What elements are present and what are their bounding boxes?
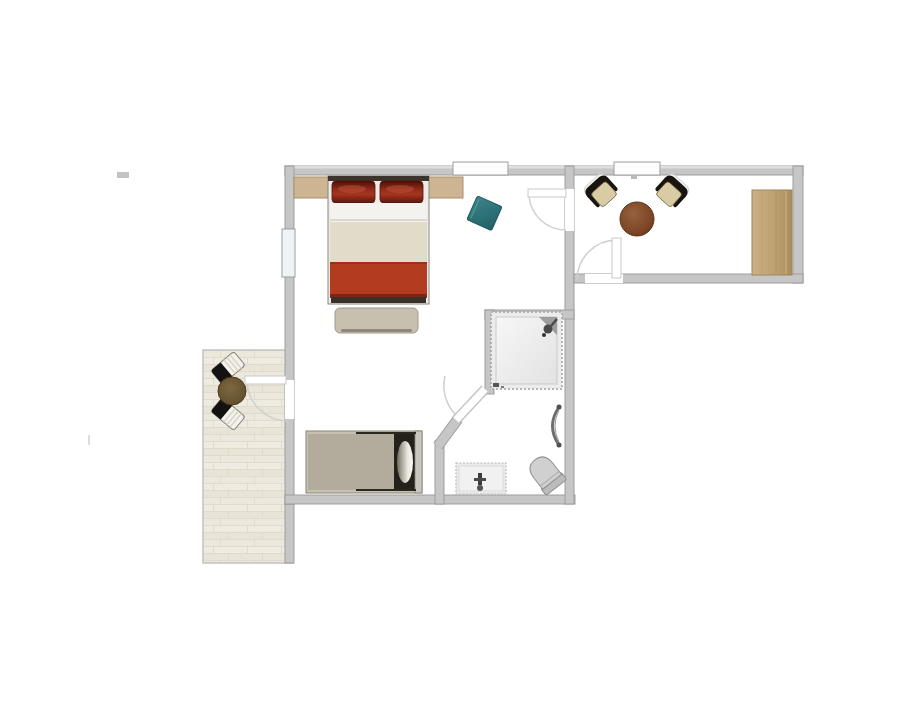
- plan-artifact-dash: [117, 172, 129, 178]
- bed-blanket-red: [330, 262, 427, 298]
- pillow-highlight: [338, 185, 366, 193]
- door-arc-bedroom-hallway: [529, 196, 566, 230]
- nightstand-right: [427, 177, 463, 198]
- wall-hallway-right: [793, 166, 803, 283]
- shower-handle-dot: [501, 386, 504, 388]
- round-side-table: [620, 202, 654, 236]
- floor-plan: [0, 0, 923, 723]
- wardrobe: [752, 190, 792, 275]
- armchair-right: [653, 171, 692, 210]
- faucet-base: [477, 485, 483, 491]
- bed-headboard: [328, 176, 429, 181]
- faucet-crossbar: [474, 478, 486, 481]
- pillow-highlight: [386, 185, 414, 193]
- daybed-mattress: [308, 434, 396, 490]
- window-mark: [631, 176, 637, 179]
- towel-radiator: [553, 405, 562, 448]
- nightstand-left: [294, 177, 329, 198]
- daybed: [306, 431, 422, 493]
- blanket-edge: [330, 262, 427, 264]
- door-arc-bathroom: [444, 376, 459, 418]
- sheet-fold: [330, 219, 427, 221]
- window-bedroom-left: [282, 229, 295, 277]
- wall-bathroom-lower-left: [435, 441, 444, 504]
- shower-handle-icon: [493, 383, 499, 387]
- double-bed: [328, 176, 429, 304]
- door-leaf-terrace: [245, 376, 286, 384]
- armchair-left: [582, 171, 621, 210]
- daybed-edge-top: [356, 432, 416, 434]
- wall-diagonal: [438, 419, 458, 446]
- bedroom: [294, 176, 502, 493]
- plan-artifact-tick: [88, 435, 90, 445]
- wall-left: [285, 166, 294, 504]
- bed-bench: [335, 308, 418, 333]
- door-leaf-bedroom-hallway: [528, 189, 566, 197]
- door-leaf-bathroom: [456, 389, 485, 420]
- terrace-right-edge: [285, 504, 294, 563]
- door-leaf-hallway-entry: [612, 238, 621, 278]
- floor-plan-canvas: [0, 0, 923, 723]
- bed-footboard: [331, 297, 426, 303]
- window-bedroom-top: [453, 162, 508, 175]
- toilet: [525, 452, 567, 496]
- doorway-terrace: [285, 380, 294, 419]
- sink-vanity: [456, 463, 506, 494]
- wall-top-highlight: [285, 166, 803, 169]
- daybed-headboard: [415, 431, 422, 493]
- daybed-edge-bottom: [356, 489, 416, 491]
- blanket-shadow: [330, 294, 427, 297]
- shower-control-icon: [542, 333, 546, 337]
- bistro-table: [218, 377, 246, 405]
- window-hallway-top: [614, 162, 660, 175]
- bed-blanket-beige: [330, 222, 427, 262]
- shower: [491, 312, 562, 389]
- wall-bottom: [285, 495, 575, 504]
- teal-pouf: [467, 196, 502, 231]
- daybed-pillow: [397, 441, 413, 483]
